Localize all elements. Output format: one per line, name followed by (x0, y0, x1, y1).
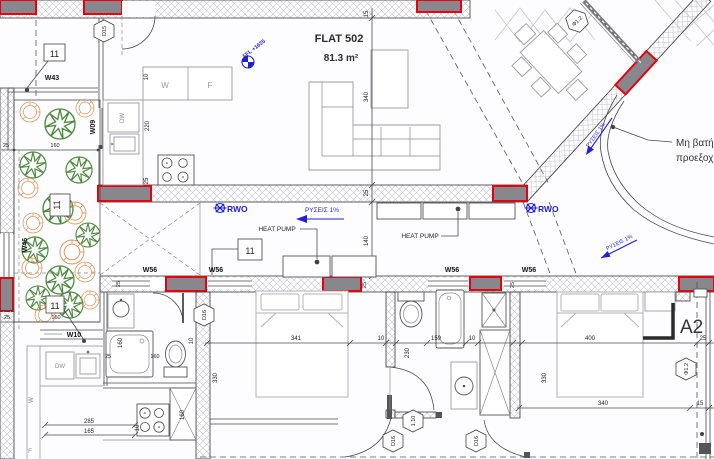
svg-text:D16: D16 (391, 436, 397, 446)
window-w56-2 (208, 278, 252, 289)
column (323, 277, 361, 291)
door-tag-d15: D15 (102, 26, 108, 36)
dim-165: 165 (84, 429, 95, 435)
heat-pump-label: HEAT PUMP (401, 233, 438, 240)
toilet-2 (398, 292, 424, 327)
right-edge-wall (694, 282, 711, 459)
column (166, 277, 206, 291)
dim-285: 285 (84, 419, 95, 425)
dim-340: 340 (364, 91, 370, 102)
column (84, 0, 122, 14)
bathtub (106, 331, 153, 377)
dim-160: 160 (51, 315, 60, 321)
slope-arrow-horizontal: ΡΥΣΕΙΣ 1% (296, 207, 344, 223)
fridge-label: F (28, 449, 32, 455)
window-tag-w56: W56 (445, 267, 460, 274)
flat-area: 81.3 m² (324, 53, 359, 64)
washbasin-2 (451, 362, 477, 409)
dim-10: 10 (189, 337, 195, 344)
dishwasher-label: DW (120, 113, 126, 123)
tag-110: 1.10 (403, 410, 423, 432)
window-tag-w10: W10 (67, 332, 82, 339)
window-w46 (1, 233, 13, 278)
heat-pump-right: HEAT PUMP (377, 203, 515, 240)
dim-220: 220 (145, 120, 151, 131)
dim-10: 10 (469, 336, 476, 342)
bedroom-2: A2 Φ1.2 (557, 282, 711, 459)
column (470, 277, 501, 290)
dim-25: 25 (510, 282, 516, 288)
dim-341: 341 (291, 336, 302, 342)
fridge-label: F (208, 81, 213, 90)
svg-text:Φ1.2: Φ1.2 (684, 363, 690, 375)
door-opening-d15 (122, 1, 155, 17)
dim-25: 25 (3, 143, 9, 149)
washbasin-left (108, 294, 134, 328)
slope-arrow-diag-lower: ΡΥΣΕΙΣ 1% (601, 234, 637, 258)
nightstand (645, 292, 675, 311)
dim-160: 160 (180, 409, 186, 420)
svg-text:11: 11 (245, 246, 254, 256)
tag-phi12-bottom: Φ1.2 (676, 358, 696, 380)
bed-2 (557, 292, 643, 397)
planter: 25 160 25 160 11 11 W46 (1, 99, 100, 340)
dim-140: 140 (364, 235, 370, 246)
ledge-note-line2: προεξοχή (676, 152, 714, 164)
ffl-level-marker: FFL +1635 (242, 39, 267, 68)
kitchen-left-wall: W09 (90, 18, 104, 185)
bathroom-left: 160 25 160 10 (103, 292, 196, 388)
dim-400: 400 (585, 336, 596, 342)
column (0, 278, 13, 311)
window-tag-w56: W56 (522, 267, 537, 274)
dim-25: 25 (362, 282, 368, 288)
kitchen-sink (110, 134, 139, 154)
kitchen-sink-2 (76, 351, 100, 378)
window-tag-w56: W56 (209, 267, 224, 274)
dim-160: 160 (150, 354, 159, 360)
svg-text:D16: D16 (474, 436, 480, 446)
column (98, 186, 151, 201)
heat-pump-left: HEAT PUMP (258, 226, 376, 277)
dim-25: 25 (144, 177, 150, 184)
svg-text:RWO: RWO (227, 204, 248, 214)
dim-25: 25 (4, 315, 10, 321)
junction-box-label: 11 (50, 49, 59, 59)
cooktop (158, 155, 194, 185)
ledge-curve: Μη βατή προεξοχή (600, 95, 714, 244)
dim-25: 25 (364, 189, 370, 196)
washer-label: W (29, 397, 35, 403)
ledge-note-line1: Μη βατή (676, 137, 714, 149)
kitchen: W F DW 10 220 25 (103, 67, 232, 185)
bedroom-1: D16 (194, 291, 392, 457)
dim-160: 160 (118, 337, 124, 348)
window-tag-w09: W09 (90, 120, 97, 135)
svg-text:D16: D16 (202, 310, 208, 320)
bed-1 (256, 291, 348, 397)
floorplan-drawing: Μη βατή προεξοχή ΡΥΣΕΙΣ 1% ΡΥΣΕΙΣ 1% (0, 0, 714, 459)
heat-pump-label: HEAT PUMP (258, 226, 295, 233)
dim-159: 159 (431, 336, 442, 342)
column (0, 0, 36, 14)
cabinet (371, 50, 408, 108)
dim-10: 10 (378, 336, 385, 342)
door-leaf (387, 395, 392, 419)
dim-25: 25 (116, 281, 122, 287)
w10-wall: W10 (40, 330, 103, 343)
floorplan-canvas: Μη βατή προεξοχή ΡΥΣΕΙΣ 1% ΡΥΣΕΙΣ 1% (0, 0, 714, 459)
junction-box-label: 11 (52, 200, 62, 209)
dim-230: 230 (405, 347, 411, 358)
dim-10: 10 (135, 424, 141, 431)
svg-text:1.10: 1.10 (411, 416, 417, 427)
dim-340: 340 (598, 401, 609, 407)
svg-text:ΡΥΣΕΙΣ 1%: ΡΥΣΕΙΣ 1% (305, 207, 339, 214)
dim-15: 15 (697, 401, 704, 407)
slope-label: ΡΥΣΕΙΣ 1% (605, 234, 633, 252)
column (417, 0, 461, 12)
window-tag-w46: W46 (22, 238, 29, 253)
door-tag-d16-2: D16 (383, 430, 403, 452)
door-tag-d16-1: D16 (194, 304, 214, 326)
window-tag-w56: W56 (143, 267, 158, 274)
terrace: RWO RWO ΡΥΣΕΙΣ 1% HEAT PUMP HEAT PUMP 11… (100, 202, 559, 288)
rwo-marker-right: RWO (525, 204, 560, 215)
window-w56-3 (428, 278, 468, 289)
dim-15: 15 (364, 10, 370, 17)
dim-10: 10 (144, 73, 150, 80)
flat-title: FLAT 502 (315, 33, 364, 45)
window-tag-w43: W43 (45, 75, 60, 82)
door-tag-d16-3: D16 (466, 430, 486, 452)
dishwasher-label: DW (55, 364, 65, 370)
shower (482, 293, 506, 327)
junction-box-label: 11 (50, 301, 59, 311)
cooktop-2 (137, 404, 169, 436)
ffl-label: FFL +1635 (242, 39, 267, 60)
rwo-marker-left: RWO (214, 204, 249, 215)
dim-25: 25 (105, 354, 111, 360)
column (493, 186, 527, 201)
toilet-left (164, 341, 187, 377)
dim-160: 160 (50, 143, 59, 149)
dim-330: 330 (542, 372, 548, 383)
section-label: A2 (680, 317, 703, 338)
washer-label: W (161, 81, 169, 90)
dim-330: 330 (213, 372, 219, 383)
svg-text:RWO: RWO (538, 204, 559, 214)
dim-25: 25 (700, 336, 707, 342)
bathroom-2 (390, 290, 530, 458)
